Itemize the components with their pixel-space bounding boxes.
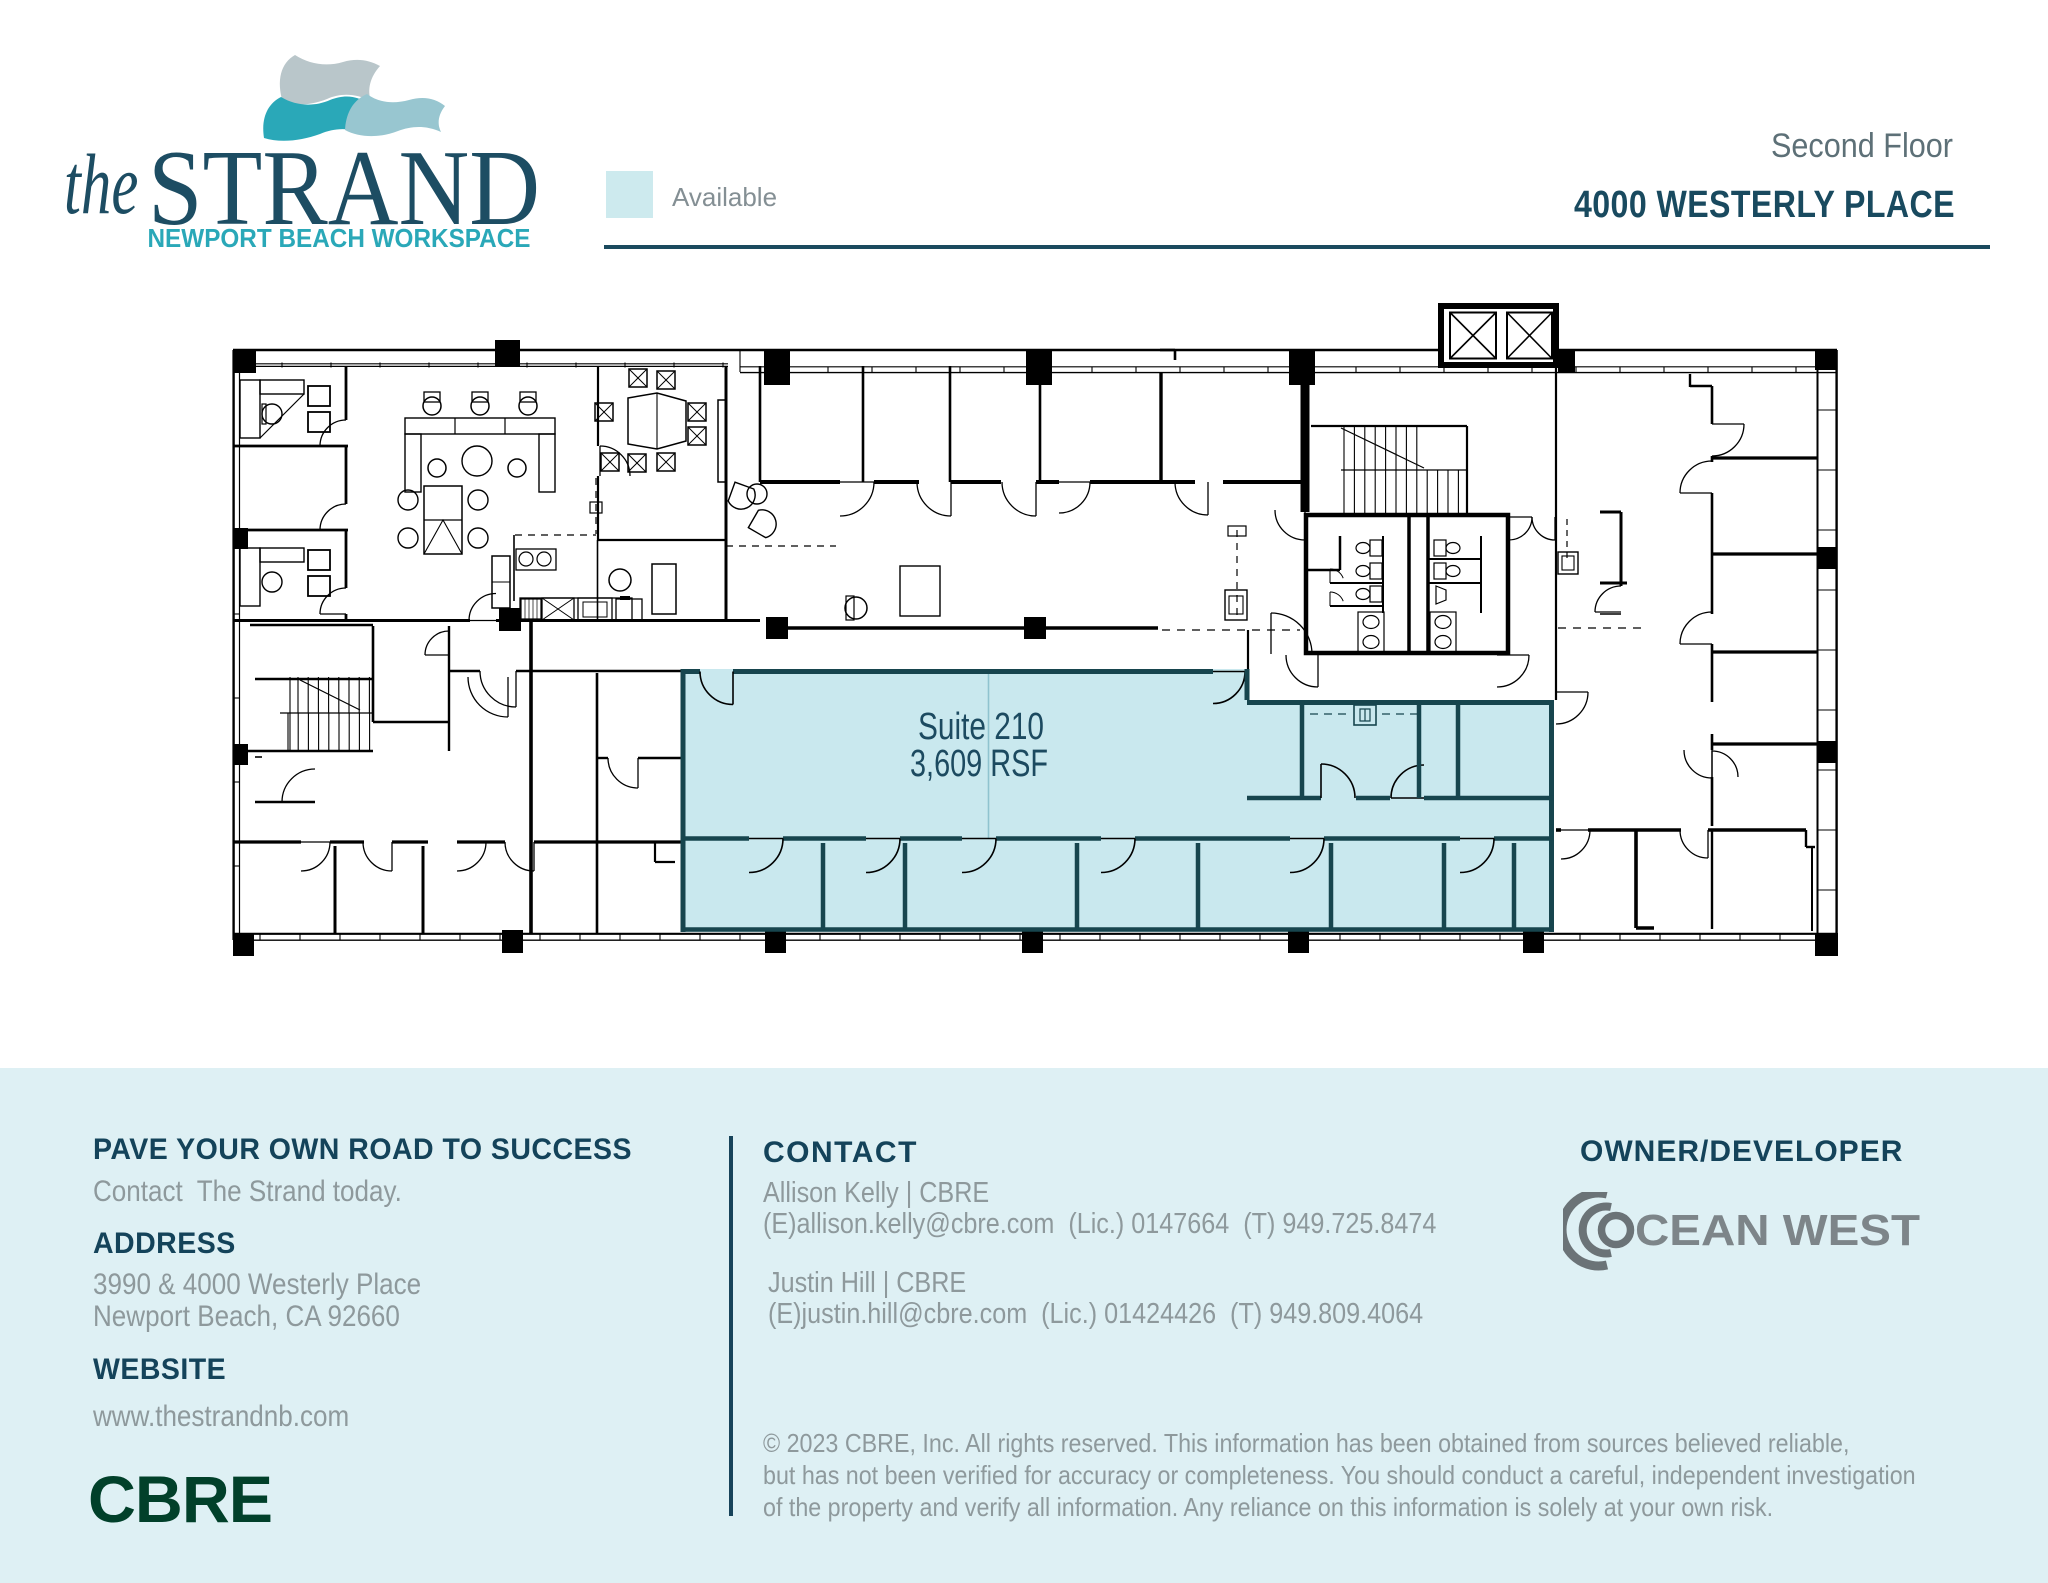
svg-text:3,609 RSF: 3,609 RSF (910, 743, 1048, 785)
svg-text:Suite 210: Suite 210 (918, 706, 1044, 748)
svg-text:CEAN WEST: CEAN WEST (1635, 1206, 1920, 1255)
svg-text:CBRE: CBRE (90, 1470, 272, 1530)
